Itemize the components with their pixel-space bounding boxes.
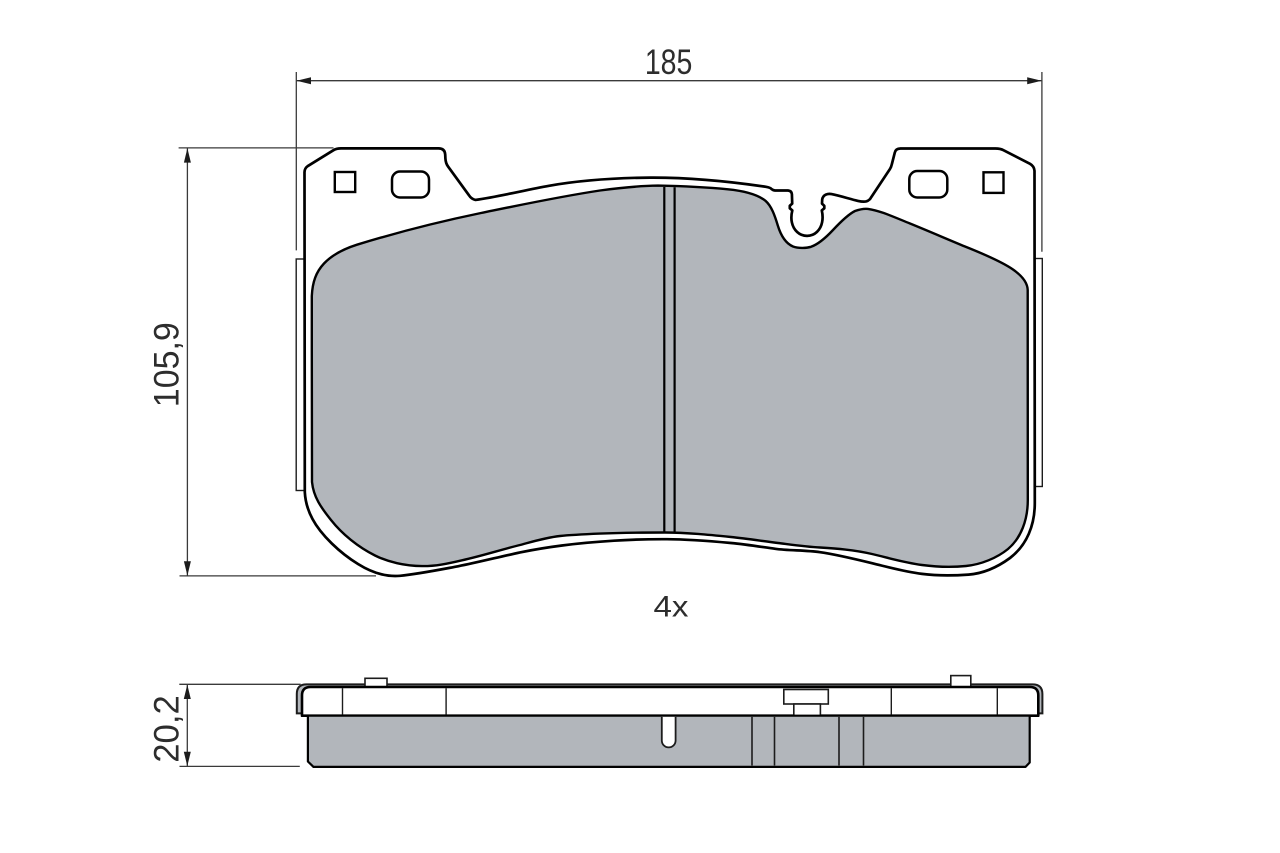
svg-text:4x: 4x [654,591,689,624]
svg-text:185: 185 [645,42,693,82]
svg-text:20,2: 20,2 [147,695,187,763]
svg-text:105,9: 105,9 [147,322,187,407]
